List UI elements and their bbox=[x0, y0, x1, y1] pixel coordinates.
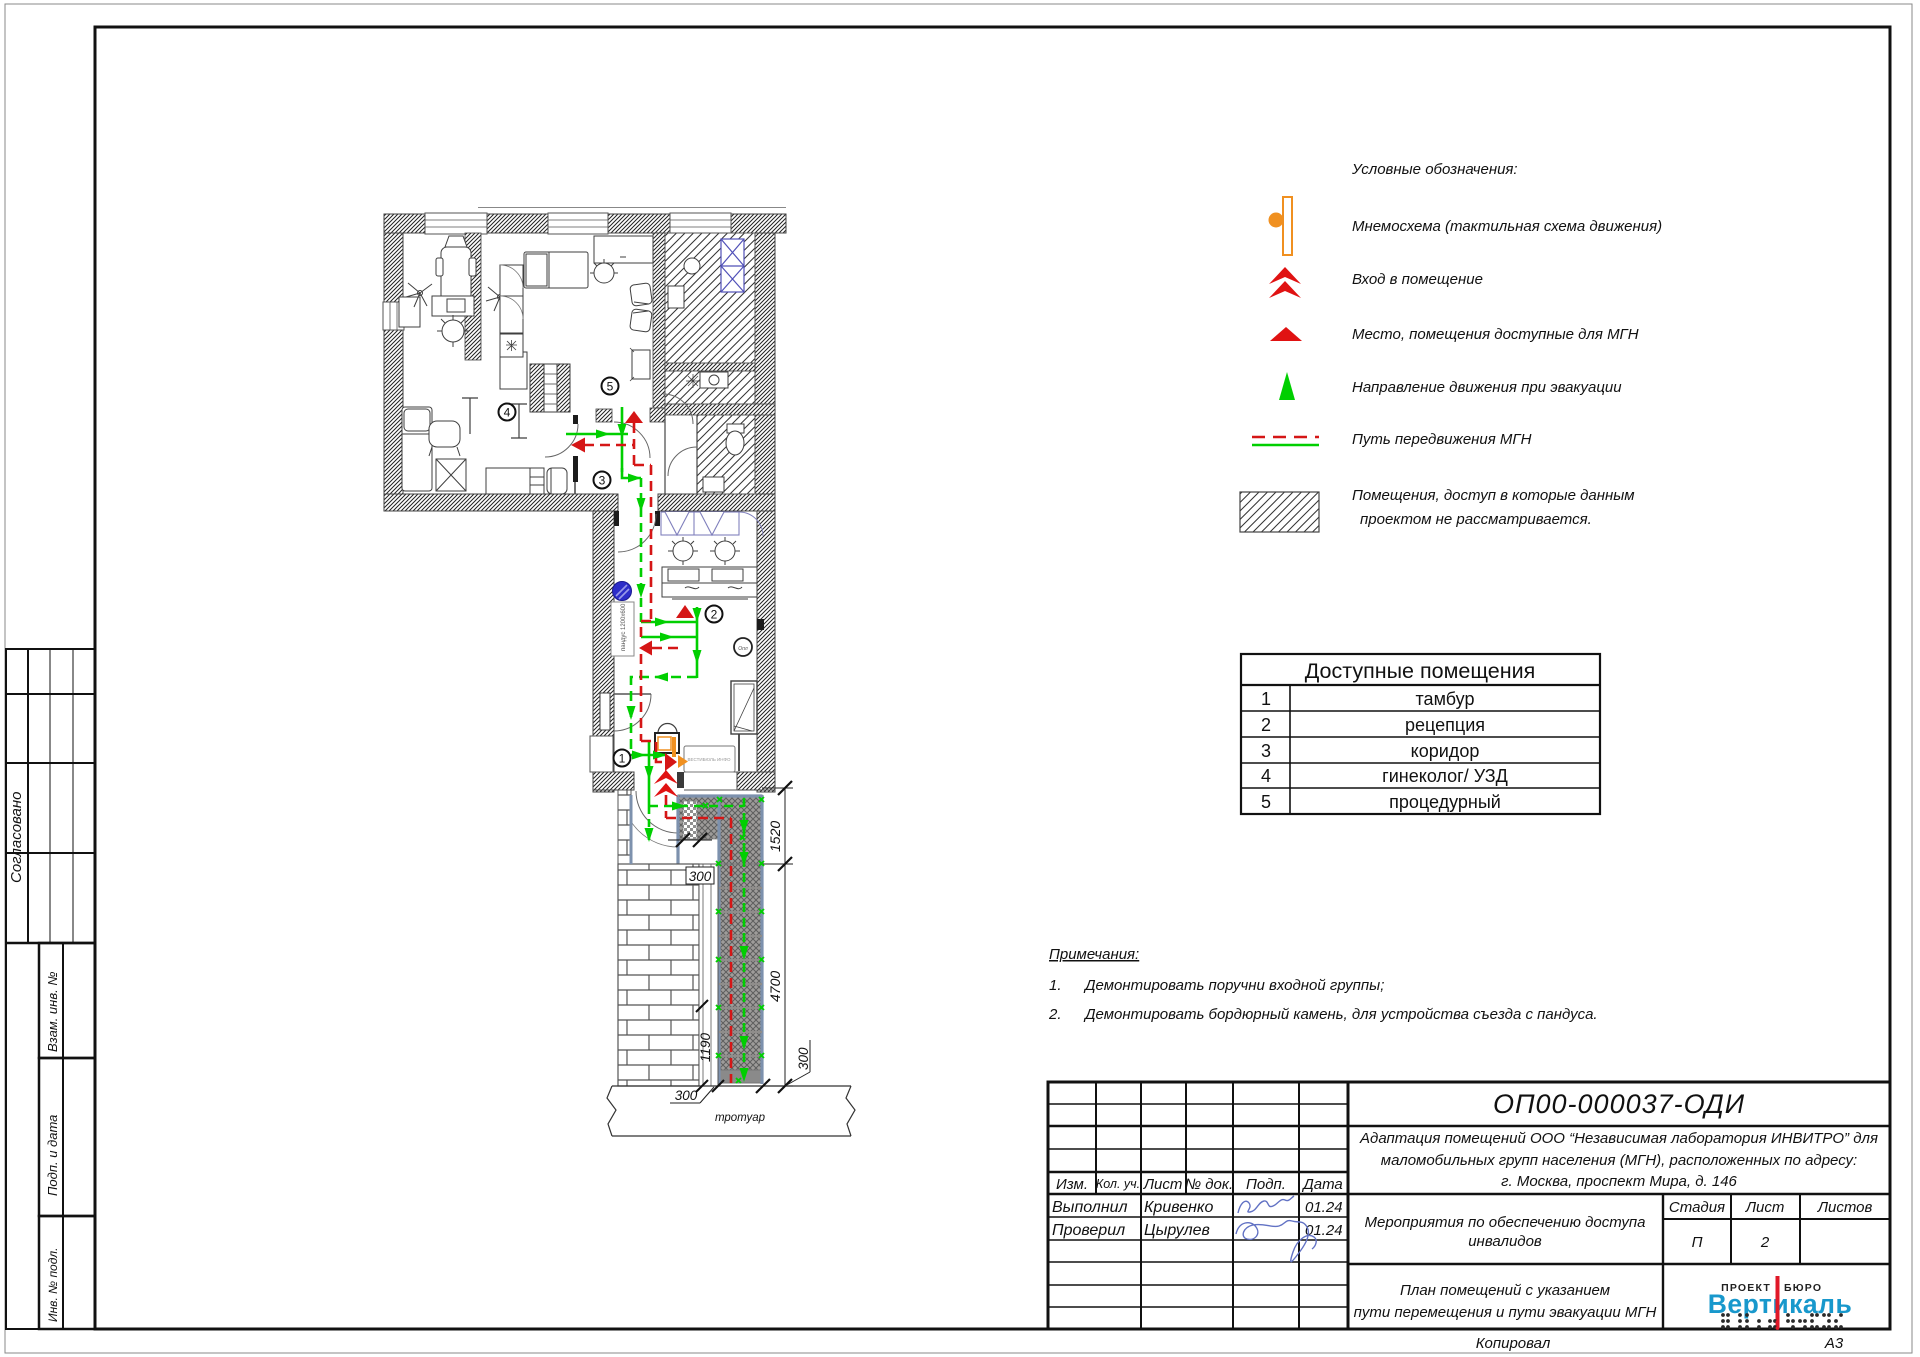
svg-text:Подп.: Подп. bbox=[1246, 1176, 1286, 1193]
svg-text:Кол. уч.: Кол. уч. bbox=[1096, 1177, 1140, 1191]
svg-text:2.: 2. bbox=[1048, 1006, 1062, 1023]
svg-text:2: 2 bbox=[711, 608, 718, 622]
svg-text:проектом не рассматривается.: проектом не рассматривается. bbox=[1360, 511, 1592, 528]
svg-text:коридор: коридор bbox=[1411, 741, 1480, 761]
svg-text:1190: 1190 bbox=[698, 1032, 713, 1062]
svg-text:4: 4 bbox=[1261, 766, 1271, 786]
svg-text:Копировал: Копировал bbox=[1476, 1335, 1551, 1352]
svg-text:Листов: Листов bbox=[1817, 1199, 1873, 1216]
svg-text:Инв. № подл.: Инв. № подл. bbox=[46, 1248, 60, 1322]
svg-text:Условные обозначения:: Условные обозначения: bbox=[1351, 161, 1518, 178]
svg-text:01.24: 01.24 bbox=[1305, 1222, 1343, 1239]
svg-text:Вход в помещение: Вход в помещение bbox=[1352, 271, 1483, 288]
svg-text:Мероприятия по обеспечению дос: Мероприятия по обеспечению доступа bbox=[1364, 1214, 1645, 1231]
svg-text:4700: 4700 bbox=[767, 971, 783, 1002]
svg-text:01.24: 01.24 bbox=[1305, 1199, 1343, 1216]
svg-text:рецепция: рецепция bbox=[1405, 715, 1485, 735]
svg-text:Стадия: Стадия bbox=[1669, 1199, 1725, 1216]
svg-text:Демонтировать бордюрный камень: Демонтировать бордюрный камень, для устр… bbox=[1083, 1006, 1598, 1023]
svg-text:1: 1 bbox=[1261, 689, 1271, 709]
svg-text:№ док.: № док. bbox=[1185, 1176, 1233, 1193]
svg-text:ОП00-000037-ОДИ: ОП00-000037-ОДИ bbox=[1493, 1089, 1745, 1119]
svg-text:инвалидов: инвалидов bbox=[1468, 1233, 1542, 1250]
svg-text:1: 1 bbox=[619, 752, 626, 766]
svg-text:Лист: Лист bbox=[1745, 1199, 1785, 1216]
svg-text:Проверил: Проверил bbox=[1052, 1222, 1125, 1239]
svg-text:300: 300 bbox=[675, 1088, 698, 1103]
svg-text:Взам. инв. №: Взам. инв. № bbox=[45, 972, 60, 1052]
svg-text:гинеколог/ УЗД: гинеколог/ УЗД bbox=[1382, 766, 1508, 786]
svg-text:Направление движения при эваку: Направление движения при эвакуации bbox=[1352, 379, 1622, 396]
svg-text:5: 5 bbox=[607, 380, 614, 394]
svg-text:Путь передвижения МГН: Путь передвижения МГН bbox=[1352, 431, 1532, 448]
svg-text:1.: 1. bbox=[1049, 977, 1062, 994]
svg-text:Доступные помещения: Доступные помещения bbox=[1305, 659, 1536, 683]
svg-text:3: 3 bbox=[599, 474, 606, 488]
svg-text:пандус 1200х600: пандус 1200х600 bbox=[621, 603, 627, 651]
svg-text:2: 2 bbox=[1760, 1234, 1770, 1251]
svg-text:А3: А3 bbox=[1824, 1335, 1844, 1352]
svg-text:тротуар: тротуар bbox=[715, 1112, 766, 1124]
svg-text:П: П bbox=[1692, 1234, 1703, 1251]
svg-text:Демонтировать поручни входной: Демонтировать поручни входной группы; bbox=[1083, 977, 1384, 994]
svg-text:Лист: Лист bbox=[1143, 1176, 1183, 1193]
svg-text:Кривенко: Кривенко bbox=[1144, 1199, 1213, 1216]
svg-text:пути перемещения и пути эвакуа: пути перемещения и пути эвакуации МГН bbox=[1354, 1304, 1657, 1321]
svg-text:2: 2 bbox=[1261, 715, 1271, 735]
svg-text:тамбур: тамбур bbox=[1416, 689, 1475, 709]
svg-text:Помещения, доступ в которые да: Помещения, доступ в которые данным bbox=[1352, 487, 1635, 504]
svg-text:Выполнил: Выполнил bbox=[1052, 1199, 1128, 1216]
svg-text:Адаптация помещений ООО “Незав: Адаптация помещений ООО “Независимая лаб… bbox=[1359, 1130, 1878, 1147]
svg-text:3: 3 bbox=[1261, 741, 1271, 761]
svg-text:г. Москва, проспект Мира, д. 1: г. Москва, проспект Мира, д. 146 bbox=[1501, 1173, 1737, 1190]
svg-text:Место, помещения доступные для: Место, помещения доступные для МГН bbox=[1352, 326, 1639, 343]
svg-text:4: 4 bbox=[504, 406, 511, 420]
svg-text:Дата: Дата bbox=[1301, 1176, 1343, 1193]
svg-text:Цырулев: Цырулев bbox=[1144, 1222, 1210, 1239]
svg-text:Мнемосхема (тактильная схема д: Мнемосхема (тактильная схема движения) bbox=[1352, 218, 1662, 235]
svg-text:Изм.: Изм. bbox=[1056, 1176, 1088, 1193]
svg-text:процедурный: процедурный bbox=[1389, 792, 1501, 812]
svg-text:1520: 1520 bbox=[767, 821, 783, 852]
svg-text:Согласовано: Согласовано bbox=[8, 792, 25, 884]
svg-text:Подп. и дата: Подп. и дата bbox=[45, 1115, 60, 1196]
svg-text:маломобильных групп населения: маломобильных групп населения (МГН), рас… bbox=[1381, 1152, 1857, 1169]
svg-text:Примечания:: Примечания: bbox=[1049, 946, 1139, 963]
svg-text:5: 5 bbox=[1261, 792, 1271, 812]
svg-text:300: 300 bbox=[796, 1047, 811, 1070]
svg-text:Опл: Опл bbox=[738, 646, 748, 652]
svg-text:План помещений с указанием: План помещений с указанием bbox=[1400, 1282, 1610, 1299]
svg-text:300: 300 bbox=[689, 869, 712, 884]
svg-text:ВЕСТИБЮЛЬ ИНФО: ВЕСТИБЮЛЬ ИНФО bbox=[688, 757, 731, 762]
